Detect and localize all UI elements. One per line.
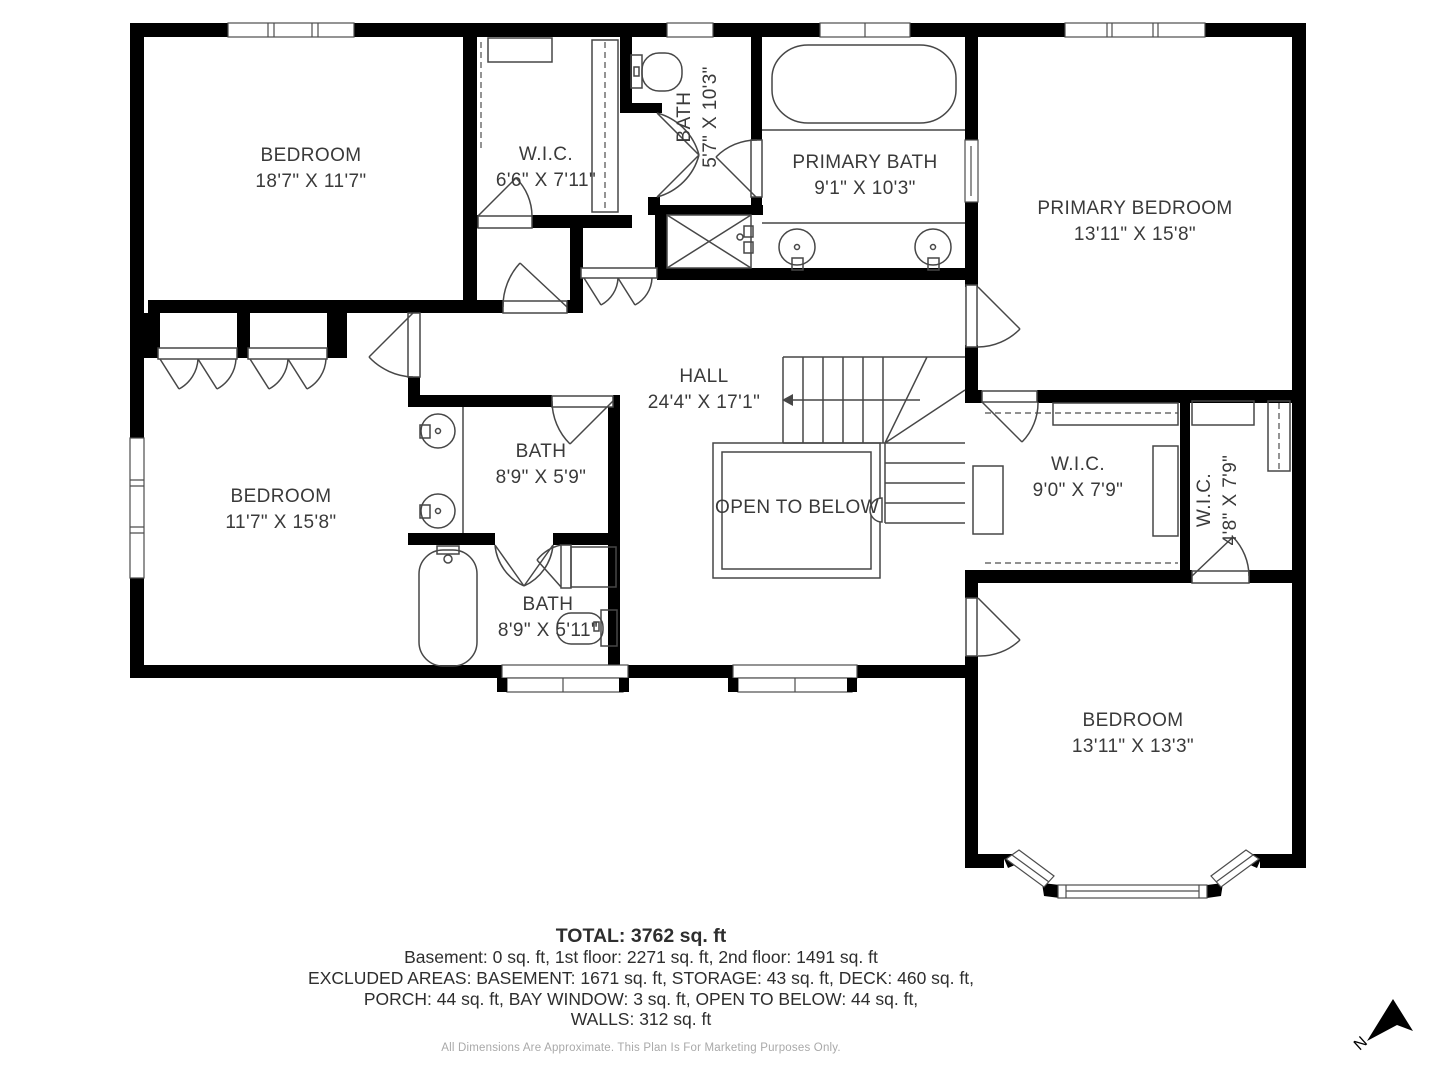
room-dims: 13'11" X 15'8": [1037, 222, 1232, 248]
room-name: BEDROOM: [225, 484, 336, 510]
room-label-open-to-below: OPEN TO BELOW: [715, 495, 879, 521]
floor-plan-page: N BEDROOM 18'7" X 11'7" W.I.C. 6'6" X 7'…: [0, 0, 1440, 1080]
room-name: PRIMARY BATH: [792, 150, 937, 176]
room-dims: 8'9" X 5'11": [498, 618, 598, 644]
room-label-primary-bath: PRIMARY BATH 9'1" X 10'3": [792, 150, 937, 202]
room-dims: 24'4" X 17'1": [648, 390, 761, 416]
room-name: BATH: [496, 439, 587, 465]
room-label-bedroom-bottom: BEDROOM 13'11" X 13'3": [1072, 708, 1194, 760]
room-dims: 11'7" X 15'8": [225, 510, 336, 536]
shower-icon-top-bath: [667, 215, 753, 268]
vanity-sinks-mid-bath: [420, 407, 463, 533]
excluded-areas-line3: WALLS: 312 sq. ft: [241, 1009, 1041, 1030]
room-dims: 5'7" X 10'3": [698, 66, 724, 168]
room-dims: 13'11" X 13'3": [1072, 734, 1194, 760]
window-bottom-right: [728, 665, 857, 692]
disclaimer-text: All Dimensions Are Approximate. This Pla…: [241, 1042, 1041, 1054]
room-dims: 9'1" X 10'3": [792, 176, 937, 202]
room-label-wic-top: W.I.C. 6'6" X 7'11": [496, 142, 596, 194]
window-left-bedroom: [130, 438, 144, 578]
room-label-wic-right: W.I.C. 9'0" X 7'9": [1033, 452, 1124, 504]
north-label: N: [1351, 1034, 1371, 1054]
room-dims: 8'9" X 5'9": [496, 465, 587, 491]
window-top-bedroom: [228, 23, 354, 37]
room-name: HALL: [648, 364, 761, 390]
bathtub-icon-lower: [419, 546, 477, 666]
room-name: W.I.C.: [496, 142, 596, 168]
excluded-areas-line1: EXCLUDED AREAS: BASEMENT: 1671 sq. ft, S…: [241, 968, 1041, 989]
door-primary-bedroom: [966, 285, 1020, 347]
room-name: BEDROOM: [1072, 708, 1194, 734]
room-name: BATH: [498, 592, 598, 618]
room-dims: 4'8" X 7'9": [1218, 455, 1244, 546]
room-name: BATH: [672, 66, 698, 168]
room-name: W.I.C.: [1033, 452, 1124, 478]
room-label-bedroom-top-left: BEDROOM 18'7" X 11'7": [255, 143, 366, 195]
room-label-primary-bedroom: PRIMARY BEDROOM 13'11" X 15'8": [1037, 196, 1232, 248]
floor-areas: Basement: 0 sq. ft, 1st floor: 2271 sq. …: [241, 947, 1041, 968]
room-label-bath-top: BATH 5'7" X 10'3": [672, 66, 724, 168]
room-name: W.I.C.: [1192, 455, 1218, 546]
area-summary: TOTAL: 3762 sq. ft Basement: 0 sq. ft, 1…: [241, 926, 1041, 1054]
door-bath-mid: [552, 396, 613, 444]
door-wic-right: [982, 391, 1038, 442]
room-label-bath-mid: BATH 8'9" X 5'9": [496, 439, 587, 491]
bathtub-icon-primary: [762, 45, 965, 130]
bay-window: [1002, 850, 1263, 898]
room-label-hall: HALL 24'4" X 17'1": [648, 364, 761, 416]
door-bath-lower-double: [495, 545, 553, 586]
room-dims: 6'6" X 7'11": [496, 168, 596, 194]
room-label-wic-small: W.I.C. 4'8" X 7'9": [1192, 455, 1244, 546]
room-dims: 18'7" X 11'7": [255, 169, 366, 195]
window-primary-bath-sidelite: [965, 140, 978, 202]
door-bottom-bedroom: [966, 598, 1020, 656]
excluded-areas-line2: PORCH: 44 sq. ft, BAY WINDOW: 3 sq. ft, …: [241, 989, 1041, 1010]
room-name: OPEN TO BELOW: [715, 495, 879, 521]
window-bottom-left: [497, 665, 629, 692]
window-top-primary-bath: [820, 23, 910, 37]
door-shower-lower: [537, 545, 571, 588]
door-left-bedroom: [369, 313, 420, 377]
room-name: PRIMARY BEDROOM: [1037, 196, 1232, 222]
room-name: BEDROOM: [255, 143, 366, 169]
room-label-bedroom-left: BEDROOM 11'7" X 15'8": [225, 484, 336, 536]
total-area: TOTAL: 3762 sq. ft: [241, 926, 1041, 947]
window-top-bath: [667, 23, 713, 37]
vanity-sinks-primary-bath: [762, 223, 965, 270]
door-vestibule: [503, 263, 567, 313]
north-arrow-icon: N: [1351, 999, 1413, 1054]
window-top-primary-bedroom: [1065, 23, 1205, 37]
room-label-bath-lower: BATH 8'9" X 5'11": [498, 592, 598, 644]
room-dims: 9'0" X 7'9": [1033, 478, 1124, 504]
